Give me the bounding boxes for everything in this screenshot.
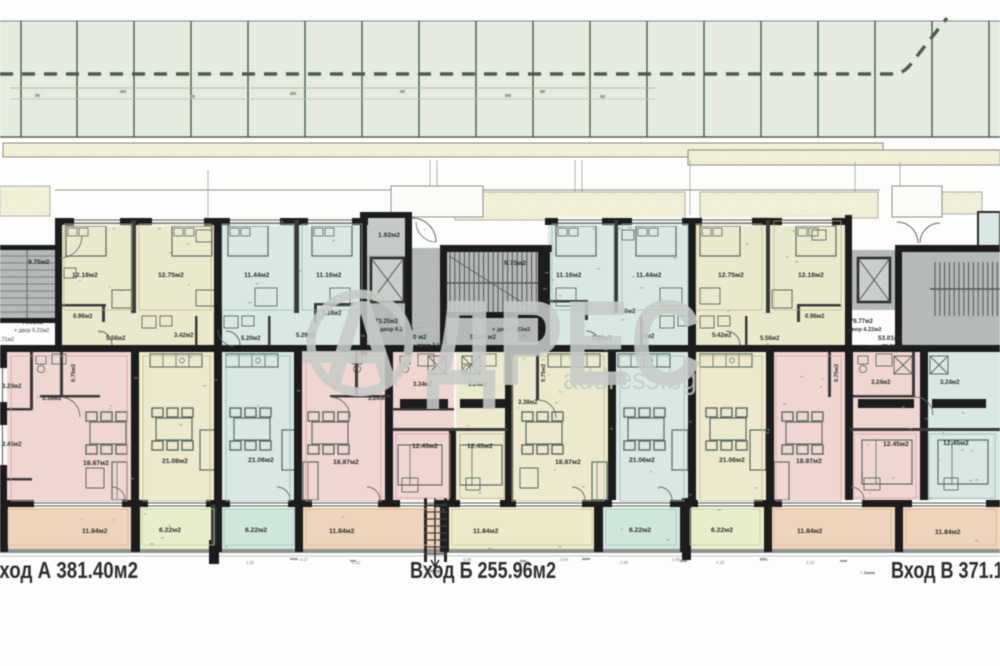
- svg-text:+ двор 11.84м2: + двор 11.84м2: [862, 344, 903, 350]
- svg-text:18.87м2: 18.87м2: [796, 458, 822, 465]
- svg-text:9.75м2: 9.75м2: [504, 260, 526, 267]
- svg-text:Вход Б 255.96м2: Вход Б 255.96м2: [410, 557, 556, 583]
- svg-text:21.06м2: 21.06м2: [629, 457, 655, 464]
- svg-text:Вход А 381.40м2: Вход А 381.40м2: [0, 557, 138, 583]
- svg-text:18.87м2: 18.87м2: [333, 459, 359, 466]
- svg-text:+ двор 5.22м2: + двор 5.22м2: [14, 328, 49, 334]
- svg-text:12.45м2: 12.45м2: [412, 443, 438, 450]
- svg-text:address.bg: address.bg: [563, 363, 697, 396]
- svg-text:4.10: 4.10: [716, 560, 725, 565]
- svg-text:6.22м2: 6.22м2: [629, 527, 651, 534]
- svg-text:11.84м2: 11.84м2: [473, 528, 499, 535]
- svg-text:3.38м2: 3.38м2: [42, 396, 62, 402]
- svg-text:2.45м2: 2.45м2: [2, 442, 22, 448]
- svg-text:2.95: 2.95: [620, 560, 629, 565]
- svg-text:4.27: 4.27: [300, 557, 309, 562]
- svg-text:3.15: 3.15: [806, 560, 815, 565]
- svg-text:21.06м2: 21.06м2: [248, 457, 274, 464]
- svg-text:1.92м2: 1.92м2: [378, 232, 400, 239]
- svg-text:21.08м2: 21.08м2: [162, 458, 188, 465]
- svg-text:5.42м2: 5.42м2: [712, 333, 732, 339]
- svg-text:0.96м2: 0.96м2: [73, 314, 93, 320]
- svg-text:11.84м2: 11.84м2: [329, 528, 355, 535]
- svg-text:3.24м2: 3.24м2: [871, 380, 891, 386]
- svg-text:5.20м2: 5.20м2: [241, 336, 261, 342]
- svg-text:12.18м2: 12.18м2: [798, 272, 824, 279]
- svg-text:6.22м2: 6.22м2: [159, 527, 181, 534]
- svg-text:5.56м2: 5.56м2: [106, 336, 126, 342]
- svg-text:11.84м2: 11.84м2: [82, 528, 108, 535]
- svg-text:11.84м2: 11.84м2: [797, 528, 823, 535]
- svg-text:А: А: [322, 275, 400, 411]
- svg-text:21.06м2: 21.06м2: [719, 457, 745, 464]
- svg-text:3.24м2: 3.24м2: [940, 380, 960, 386]
- svg-text:1.50: 1.50: [672, 557, 681, 562]
- svg-text:12.45м2: 12.45м2: [943, 440, 969, 447]
- svg-text:3.42м2: 3.42м2: [174, 333, 194, 339]
- svg-text:3.28м2: 3.28м2: [2, 384, 22, 390]
- svg-text:76.77м2: 76.77м2: [850, 319, 873, 325]
- svg-text:11.84м2: 11.84м2: [935, 529, 961, 536]
- svg-text:12.45м2: 12.45м2: [883, 441, 909, 448]
- svg-text:.71м2: .71м2: [0, 337, 14, 343]
- svg-text:53.01м2: 53.01м2: [878, 335, 903, 342]
- svg-text:5.56м2: 5.56м2: [760, 336, 780, 342]
- svg-text:0.96м2: 0.96м2: [805, 314, 825, 320]
- svg-text:18.87м2: 18.87м2: [555, 459, 581, 466]
- svg-text:11.44м2: 11.44м2: [244, 272, 270, 279]
- svg-text:3.64: 3.64: [560, 557, 569, 562]
- svg-text:12.75м2: 12.75м2: [718, 272, 744, 279]
- svg-text:6.22м2: 6.22м2: [245, 527, 267, 534]
- svg-text:6.22м2: 6.22м2: [711, 527, 733, 534]
- svg-text:двор 4.22м2: двор 4.22м2: [848, 327, 881, 333]
- svg-text:1.50: 1.50: [246, 560, 255, 565]
- svg-text:18.87м2: 18.87м2: [83, 460, 109, 467]
- svg-text:12.45м2: 12.45м2: [467, 443, 493, 450]
- svg-text:Вход В 371.10м2: Вход В 371.10м2: [891, 557, 1000, 583]
- svg-text:0.75м2: 0.75м2: [71, 364, 77, 382]
- svg-text:0.75м2: 0.75м2: [834, 364, 840, 382]
- svg-text:9.75м2: 9.75м2: [28, 259, 50, 266]
